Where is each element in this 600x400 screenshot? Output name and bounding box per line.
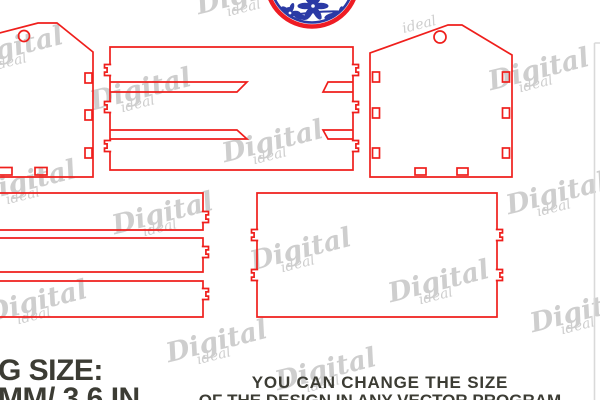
right-side-panel-slot [373, 72, 380, 82]
slat-outline [0, 238, 203, 272]
left-side-panel-slot [0, 168, 12, 176]
finger-tab [105, 65, 112, 76]
left-side-panel-outline [0, 23, 93, 177]
right-side-panel-slot [415, 168, 426, 175]
finger-tab [352, 102, 359, 113]
right-side-panel-slot [373, 148, 380, 158]
top-wrap-panel-slit [110, 82, 247, 92]
laser-template-preview: DigitalidealDigitalidealDigitalidealDigi… [0, 0, 600, 400]
watermark-layer: DigitalidealDigitalidealDigitalidealDigi… [0, 0, 600, 400]
finger-tab [202, 289, 209, 300]
slat-outline [0, 281, 203, 317]
watermark: ideal [401, 14, 438, 36]
brand-logo [0, 0, 600, 400]
size-label: G SIZE: MM/ 3.6 IN [0, 357, 140, 400]
watermark: Digitalideal [0, 22, 68, 80]
finger-tab [252, 230, 259, 241]
logo-floral-ornament-icon [272, 0, 363, 24]
caption-layer: G SIZE: MM/ 3.6 IN YOU CAN CHANGE THE SI… [0, 0, 600, 400]
right-side-panel-hanging-hole [434, 31, 446, 43]
top-wrap-panel-slit [110, 130, 247, 139]
watermark: Digitalideal [527, 286, 600, 344]
watermark: Digitalideal [109, 188, 217, 246]
finger-tab [352, 141, 359, 152]
finger-tab [202, 247, 209, 258]
right-side-panel-slot [503, 148, 510, 158]
left-side-panel-slot [85, 110, 92, 120]
bottom-panel-outline [257, 193, 497, 317]
finger-tab [202, 212, 209, 223]
bottom-panel-outline [257, 193, 497, 317]
watermark: Digitalideal [247, 224, 355, 282]
slat-outline [0, 193, 203, 230]
watermark: Digitalideal [0, 276, 92, 334]
top-wrap-panel-outline [110, 47, 353, 170]
pieces-outline-layer [0, 0, 600, 400]
watermark: Digitalideal [0, 156, 81, 214]
left-side-panel-slot [85, 73, 92, 83]
watermark: Digitalideal [385, 256, 493, 314]
watermark: Digitalideal [163, 316, 271, 374]
finger-tab [252, 230, 259, 241]
top-wrap-panel-slit [323, 82, 353, 92]
finger-tab [105, 102, 112, 113]
logo-outer-ring [267, 0, 358, 27]
finger-tab [105, 141, 112, 152]
finger-tab [105, 141, 112, 152]
finger-tab [352, 141, 359, 152]
finger-tab [352, 65, 359, 76]
right-side-panel-outline [370, 25, 512, 177]
right-side-panel-slot [457, 168, 468, 175]
finger-tab [496, 230, 503, 241]
slat-outline [0, 193, 203, 230]
size-label-line1: G SIZE: [0, 357, 140, 385]
size-label-line2: MM/ 3.6 IN [0, 385, 140, 400]
finger-tab [352, 102, 359, 113]
finger-tab [202, 247, 209, 258]
left-side-panel-slot [35, 168, 47, 176]
finger-tab [352, 65, 359, 76]
finger-tab [105, 102, 112, 113]
left-side-panel-slot [85, 148, 92, 158]
top-wrap-panel-slit [323, 130, 353, 139]
resize-notice: YOU CAN CHANGE THE SIZE OF THE DESIGN IN… [180, 374, 580, 400]
slat-outline [0, 281, 203, 317]
watermark: Digitalideal [219, 116, 327, 174]
watermark: Digitalideal [485, 44, 593, 102]
page-edge-line [595, 43, 600, 400]
left-side-panel-hanging-hole [19, 31, 30, 42]
left-side-panel-outline [0, 23, 93, 177]
finger-tab [252, 270, 259, 281]
resize-notice-line1: YOU CAN CHANGE THE SIZE [180, 374, 580, 392]
watermark: Digitalideal [193, 0, 301, 26]
finger-tab [202, 212, 209, 223]
right-side-panel-outline [370, 25, 512, 177]
top-wrap-panel-outline [110, 47, 353, 170]
watermark: Digitalideal [87, 64, 195, 122]
pieces-fill-layer [0, 0, 600, 400]
right-side-panel-slot [503, 72, 510, 82]
finger-tab [496, 270, 503, 281]
right-side-panel-slot [373, 108, 380, 118]
logo-badge-icon [267, 0, 363, 27]
finger-tab [202, 289, 209, 300]
right-side-panel-slot [503, 108, 510, 118]
finger-tab [496, 230, 503, 241]
finger-tab [252, 270, 259, 281]
watermark: Digitalideal [503, 168, 600, 226]
finger-tab [105, 65, 112, 76]
watermark: Digitalideal [272, 344, 380, 400]
logo-inner-ring [271, 0, 354, 23]
slat-outline [0, 238, 203, 272]
resize-notice-line2: OF THE DESIGN IN ANY VECTOR PROGRAM [180, 392, 580, 400]
finger-tab [496, 270, 503, 281]
